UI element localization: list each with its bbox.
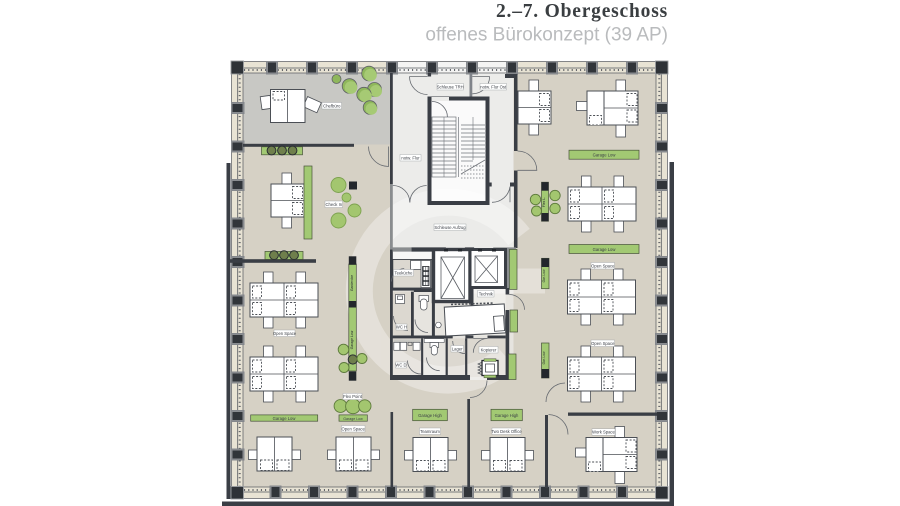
svg-text:Gar. Low: Gar. Low <box>542 269 546 282</box>
svg-text:Flex L.: Flex L. <box>542 197 546 207</box>
svg-text:Teamraum: Teamraum <box>420 429 440 434</box>
svg-text:Garage Low: Garage Low <box>273 416 297 421</box>
svg-text:Two Desk Office: Two Desk Office <box>491 429 522 434</box>
svg-text:Flex Point: Flex Point <box>343 394 362 399</box>
svg-text:WC D: WC D <box>395 363 406 368</box>
svg-text:Open Space: Open Space <box>591 341 615 346</box>
svg-text:Garage Low: Garage Low <box>350 330 354 349</box>
svg-text:WC H: WC H <box>396 325 407 330</box>
svg-text:offenes Bürokonzept (39 AP): offenes Bürokonzept (39 AP) <box>425 25 668 46</box>
svg-text:2.–7. Obergeschoss: 2.–7. Obergeschoss <box>496 1 668 22</box>
svg-text:Schleuse TRH: Schleuse TRH <box>437 84 464 89</box>
svg-text:Kopierer: Kopierer <box>481 347 497 352</box>
svg-text:Chefbüro: Chefbüro <box>323 103 341 108</box>
svg-text:Open Space: Open Space <box>342 426 366 431</box>
svg-text:Garage High: Garage High <box>418 413 442 418</box>
svg-text:Gar. Low: Gar. Low <box>542 351 546 364</box>
svg-text:notw. Flur: notw. Flur <box>401 155 420 160</box>
svg-text:notw. Flur Ost: notw. Flur Ost <box>480 84 507 89</box>
svg-text:Garderobe: Garderobe <box>350 275 354 291</box>
svg-text:Garage Low: Garage Low <box>593 247 617 252</box>
svg-text:Open Space: Open Space <box>273 331 297 336</box>
svg-text:Check In: Check In <box>326 202 343 207</box>
svg-text:Garage High: Garage High <box>495 413 519 418</box>
svg-text:Technik: Technik <box>479 291 494 296</box>
svg-text:Lager: Lager <box>452 346 463 351</box>
svg-text:Schleuse Aufzug: Schleuse Aufzug <box>434 225 466 230</box>
svg-text:Open Space: Open Space <box>591 263 615 268</box>
svg-text:Teeküche: Teeküche <box>395 270 414 275</box>
svg-text:Work Space: Work Space <box>592 430 615 435</box>
svg-text:Garage Low: Garage Low <box>343 417 363 421</box>
svg-text:Garage Low: Garage Low <box>593 153 617 158</box>
